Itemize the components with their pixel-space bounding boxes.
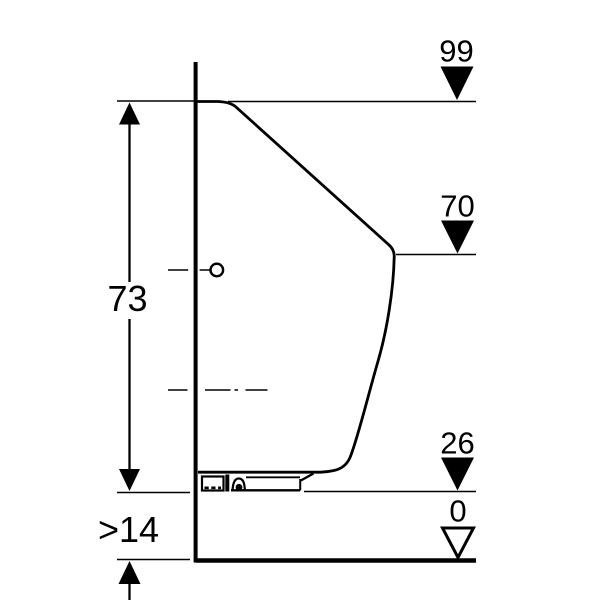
dim-label-min14: >14 [98, 509, 159, 550]
level-marker-99: 99 [439, 34, 473, 101]
level-label-26: 26 [440, 426, 474, 461]
level-label-99: 99 [439, 34, 473, 69]
level-marker-26: 26 [440, 426, 474, 491]
dimension-73: 73 [107, 101, 194, 493]
arrow-up-icon [119, 103, 140, 125]
level-marker-70: 70 [440, 189, 474, 254]
outlet-channel-chamfer [301, 474, 314, 481]
filled-triangle-down-icon [441, 458, 474, 491]
outlet-trap-detail [202, 474, 314, 492]
filled-triangle-down-icon [441, 67, 474, 101]
technical-diagram-canvas: 73 >14 99 70 26 0 [0, 0, 600, 600]
urinal-side-elevation-drawing: 73 >14 99 70 26 0 [0, 0, 600, 600]
open-triangle-down-icon [443, 528, 474, 558]
fixing-hole-icon [211, 264, 224, 277]
level-marker-0: 0 [443, 494, 474, 558]
dimension-min14: >14 [98, 509, 190, 600]
level-label-70: 70 [440, 189, 474, 224]
dim-label-73: 73 [107, 278, 147, 319]
filled-triangle-down-icon [441, 221, 474, 254]
urinal-body-outline [196, 102, 394, 473]
level-label-0: 0 [449, 494, 466, 529]
arrow-up-icon [119, 561, 141, 584]
arrow-down-icon [119, 469, 140, 491]
